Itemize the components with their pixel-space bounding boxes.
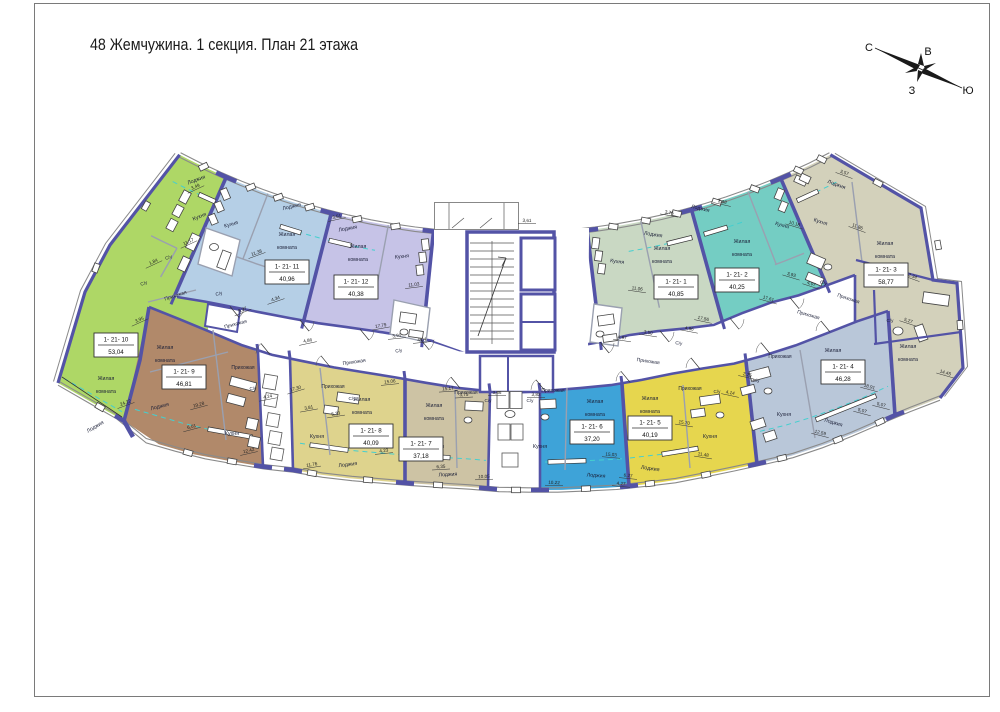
svg-text:С/у: С/у xyxy=(250,386,258,391)
svg-text:С/у: С/у xyxy=(753,378,761,383)
svg-text:С: С xyxy=(865,42,873,54)
svg-text:46,28: 46,28 xyxy=(835,376,851,383)
svg-text:10,22: 10,22 xyxy=(548,480,560,485)
svg-text:40,09: 40,09 xyxy=(363,440,379,447)
svg-text:15,03: 15,03 xyxy=(605,452,617,458)
svg-text:1- 21- 10: 1- 21- 10 xyxy=(104,337,129,344)
svg-text:1- 21- 12: 1- 21- 12 xyxy=(344,279,369,286)
svg-text:Жилая: Жилая xyxy=(426,403,443,409)
svg-text:С/у: С/у xyxy=(395,348,403,354)
svg-text:комната: комната xyxy=(277,245,297,251)
svg-text:3,83: 3,83 xyxy=(532,392,541,397)
svg-text:Ю: Ю xyxy=(962,85,973,97)
svg-text:Кухня: Кухня xyxy=(703,434,717,440)
svg-text:З: З xyxy=(909,85,916,97)
svg-text:Жилая: Жилая xyxy=(642,396,659,402)
svg-text:1- 21- 1: 1- 21- 1 xyxy=(665,279,687,286)
svg-text:Кухня: Кухня xyxy=(533,444,547,450)
svg-text:Прихожая: Прихожая xyxy=(678,386,701,392)
svg-text:комната: комната xyxy=(352,410,372,416)
svg-text:В: В xyxy=(924,46,931,58)
svg-text:40,38: 40,38 xyxy=(348,291,364,298)
svg-text:Жилая: Жилая xyxy=(734,239,751,245)
svg-text:Прихожая: Прихожая xyxy=(321,384,344,390)
svg-text:4,04: 4,04 xyxy=(417,337,427,343)
svg-text:3,86: 3,86 xyxy=(493,390,502,395)
svg-text:Лоджия: Лоджия xyxy=(438,472,457,479)
svg-text:37,20: 37,20 xyxy=(584,436,600,443)
svg-text:Жилая: Жилая xyxy=(157,345,174,351)
svg-text:15,17: 15,17 xyxy=(442,386,454,392)
svg-text:Жилая: Жилая xyxy=(900,344,917,350)
svg-text:3,91: 3,91 xyxy=(392,333,402,339)
svg-text:6,35: 6,35 xyxy=(436,464,446,469)
svg-text:Прихожая: Прихожая xyxy=(231,365,254,371)
svg-text:48 Жемчужина. 1 секция. План: 48 Жемчужина. 1 секция. План 21 этажа xyxy=(90,36,359,54)
svg-text:6,27: 6,27 xyxy=(623,473,633,479)
svg-text:46,81: 46,81 xyxy=(176,381,192,388)
svg-text:40,25: 40,25 xyxy=(729,284,745,291)
svg-text:Жилая: Жилая xyxy=(350,244,367,250)
svg-text:С/у: С/у xyxy=(527,398,535,403)
svg-text:Кухня: Кухня xyxy=(777,412,791,418)
svg-text:комната: комната xyxy=(424,416,444,422)
svg-text:Жилая: Жилая xyxy=(877,241,894,247)
svg-text:1- 21- 3: 1- 21- 3 xyxy=(875,267,897,274)
svg-text:С/у: С/у xyxy=(887,318,895,323)
svg-text:комната: комната xyxy=(652,259,672,265)
svg-text:Жилая: Жилая xyxy=(279,232,296,238)
svg-text:комната: комната xyxy=(348,257,368,263)
svg-text:1- 21- 11: 1- 21- 11 xyxy=(275,264,300,271)
svg-text:комната: комната xyxy=(640,409,660,415)
svg-text:Жилая: Жилая xyxy=(654,246,671,252)
svg-text:3,75: 3,75 xyxy=(459,392,469,397)
svg-text:С/у: С/у xyxy=(714,389,722,394)
svg-text:1- 21- 2: 1- 21- 2 xyxy=(726,272,748,279)
svg-text:40,19: 40,19 xyxy=(642,432,658,439)
svg-text:Жилая: Жилая xyxy=(354,397,371,403)
svg-text:Жилая: Жилая xyxy=(825,348,842,354)
svg-text:10,05: 10,05 xyxy=(478,474,490,479)
svg-text:Прихожая: Прихожая xyxy=(541,388,564,394)
svg-text:комната: комната xyxy=(96,389,116,395)
svg-text:37,18: 37,18 xyxy=(413,453,429,460)
svg-text:1- 21- 8: 1- 21- 8 xyxy=(360,428,382,435)
svg-text:1- 21- 7: 1- 21- 7 xyxy=(410,441,432,448)
svg-text:58,77: 58,77 xyxy=(878,279,894,286)
svg-text:1- 21- 4: 1- 21- 4 xyxy=(832,364,854,371)
svg-text:Жилая: Жилая xyxy=(587,399,604,405)
svg-text:Жилая: Жилая xyxy=(98,376,115,382)
svg-text:комната: комната xyxy=(898,357,918,363)
svg-text:комната: комната xyxy=(155,358,175,364)
svg-text:4,27: 4,27 xyxy=(616,481,626,487)
svg-text:40,96: 40,96 xyxy=(279,276,295,283)
svg-text:С/у: С/у xyxy=(349,396,357,401)
svg-text:С/у: С/у xyxy=(485,398,493,403)
svg-text:40,85: 40,85 xyxy=(668,291,684,298)
svg-text:Кухня: Кухня xyxy=(225,431,239,437)
svg-text:комната: комната xyxy=(732,252,752,258)
svg-text:1- 21- 6: 1- 21- 6 xyxy=(581,424,603,431)
svg-text:3,61: 3,61 xyxy=(523,218,532,223)
svg-text:Кухня: Кухня xyxy=(310,434,324,440)
svg-text:1- 21- 5: 1- 21- 5 xyxy=(639,420,661,427)
svg-text:53,04: 53,04 xyxy=(108,349,124,356)
svg-text:комната: комната xyxy=(875,254,895,260)
svg-text:Прихожая: Прихожая xyxy=(768,354,791,360)
svg-text:комната: комната xyxy=(585,412,605,418)
svg-text:1- 21- 9: 1- 21- 9 xyxy=(173,369,195,376)
